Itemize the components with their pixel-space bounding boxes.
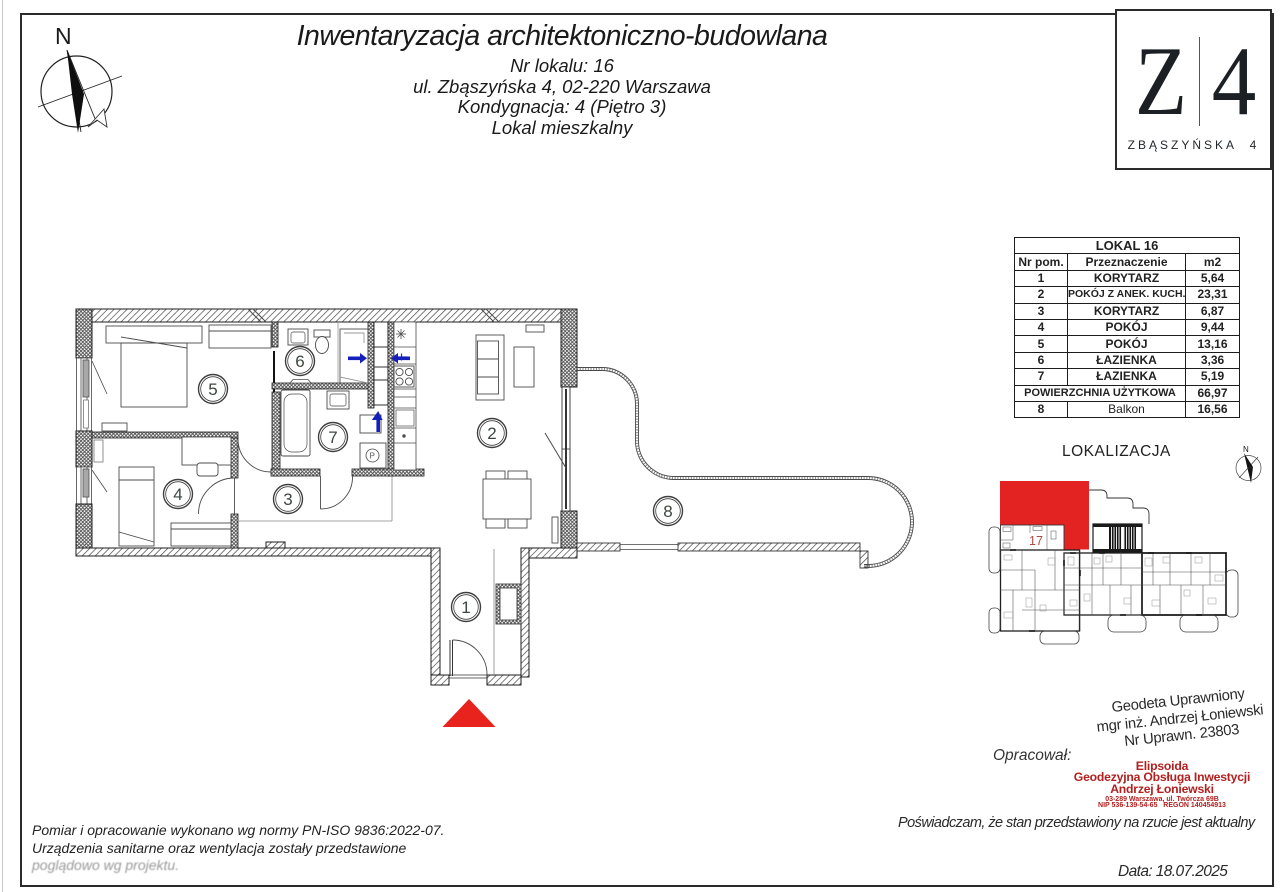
- svg-text:N: N: [55, 23, 72, 49]
- svg-text:17: 17: [1029, 534, 1043, 548]
- svg-text:6: 6: [295, 352, 304, 371]
- svg-text:N: N: [1243, 445, 1249, 454]
- svg-text:3: 3: [283, 490, 292, 509]
- svg-text:5: 5: [208, 380, 217, 399]
- svg-text:1: 1: [461, 598, 470, 617]
- svg-text:P: P: [370, 452, 375, 461]
- svg-text:7: 7: [328, 428, 337, 447]
- svg-text:2: 2: [487, 424, 496, 443]
- svg-text:8: 8: [663, 502, 672, 521]
- svg-text:4: 4: [173, 485, 182, 504]
